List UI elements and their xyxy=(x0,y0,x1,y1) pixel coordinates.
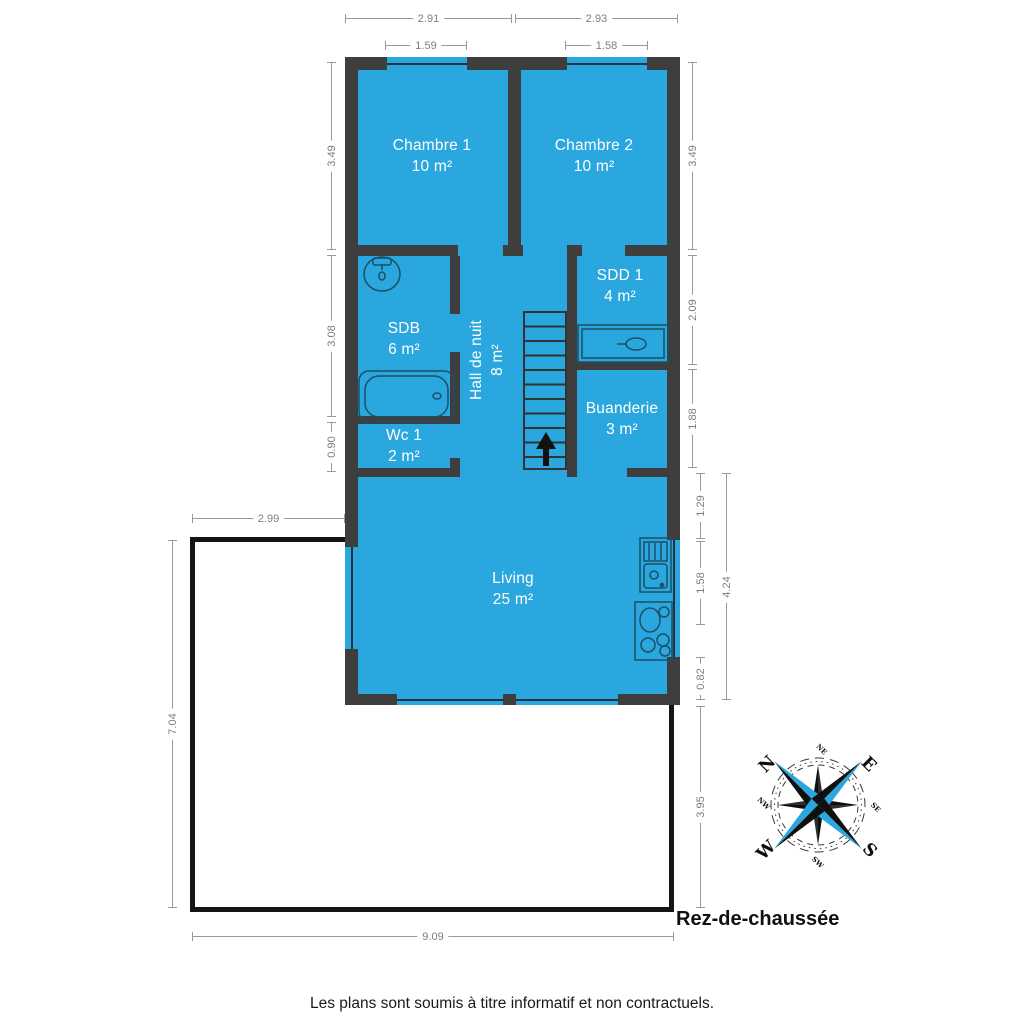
dim-right-living-total: 4.24 xyxy=(726,473,727,700)
compass-rose-icon: N E W S NE SE SW NW xyxy=(748,735,888,875)
room-name: Chambre 2 xyxy=(524,135,664,156)
wall-segment xyxy=(503,694,516,705)
terrace-outline-right xyxy=(669,705,674,912)
compass-sw-label: SW xyxy=(810,854,826,870)
compass-south-label: S xyxy=(858,839,881,862)
room-area: 2 m² xyxy=(354,446,454,467)
wall-chambre-divider xyxy=(508,57,521,256)
compass-ne-label: NE xyxy=(814,742,829,757)
compass-north-label: N xyxy=(755,752,780,777)
disclaimer-text: Les plans sont soumis à titre informatif… xyxy=(0,995,1024,1013)
dim-terrace-width-bottom: 9.09 xyxy=(192,936,674,937)
dim-left-wc: 0.90 xyxy=(331,422,332,472)
floor-title: Rez-de-chaussée xyxy=(676,908,866,931)
wall-sdb-right xyxy=(450,256,460,314)
wall-sdd-buanderie-divider xyxy=(577,362,680,370)
dim-right-living-window: 1.58 xyxy=(700,541,701,625)
dim-chambre2-width: 2.93 xyxy=(515,18,678,19)
room-name: Living xyxy=(443,568,583,589)
room-label-wc-1: Wc 1 2 m² xyxy=(354,425,454,467)
room-area: 3 m² xyxy=(552,419,692,440)
wall-sdb-wc-divider xyxy=(345,416,460,424)
wall-segment xyxy=(345,245,458,256)
room-label-living: Living 25 m² xyxy=(443,568,583,610)
compass-se-label: SE xyxy=(869,800,883,814)
room-label-chambre-2: Chambre 2 10 m² xyxy=(524,135,664,177)
room-name: Hall de nuit xyxy=(466,300,487,420)
terrace-outline-left xyxy=(190,537,195,912)
window-chambre2 xyxy=(567,59,647,68)
room-label-chambre-1: Chambre 1 10 m² xyxy=(362,135,502,177)
terrace-outline-top xyxy=(190,537,345,542)
wall-buanderie-bottom xyxy=(627,468,680,477)
dim-chambre1-window: 1.59 xyxy=(385,45,467,46)
dim-right-buanderie: 1.88 xyxy=(692,369,693,468)
room-label-sdb: SDB 6 m² xyxy=(354,318,454,360)
room-area: 6 m² xyxy=(354,339,454,360)
dim-right-chambre2-depth: 3.49 xyxy=(692,62,693,250)
compass-east-label: E xyxy=(857,753,880,776)
window-chambre1 xyxy=(387,59,467,68)
room-area: 4 m² xyxy=(560,286,680,307)
room-label-buanderie: Buanderie 3 m² xyxy=(552,398,692,440)
window-kitchen xyxy=(669,540,678,657)
room-name: Chambre 1 xyxy=(362,135,502,156)
wall-wc-bottom xyxy=(356,468,460,477)
stairs-direction-arrow xyxy=(543,447,549,466)
wall-segment xyxy=(503,245,523,256)
terrace-outline-bottom xyxy=(190,907,674,912)
floor-plan-page: Chambre 1 10 m² Chambre 2 10 m² SDB 6 m²… xyxy=(0,0,1024,1024)
dim-chambre1-width: 2.91 xyxy=(345,18,512,19)
wall-segment xyxy=(618,694,680,705)
dim-right-living-upper: 1.29 xyxy=(700,473,701,539)
dim-right-living-lower: 0.82 xyxy=(700,657,701,700)
dim-terrace-height-left: 7.04 xyxy=(172,540,173,908)
dim-left-sdb: 3.08 xyxy=(331,255,332,417)
room-area: 8 m² xyxy=(487,300,508,420)
wall-segment xyxy=(625,245,680,256)
room-label-hall-de-nuit: Hall de nuit 8 m² xyxy=(466,300,510,420)
compass-nw-label: NW xyxy=(756,795,773,812)
compass-west-label: W xyxy=(752,836,781,865)
wall-segment xyxy=(345,694,397,705)
wall-sdb-right xyxy=(450,352,460,422)
room-area: 25 m² xyxy=(443,589,583,610)
dim-right-sdd1: 2.09 xyxy=(692,255,693,365)
dim-left-chambre1-depth: 3.49 xyxy=(331,62,332,250)
dim-right-terrace: 3.95 xyxy=(700,706,701,908)
room-name: SDD 1 xyxy=(560,265,680,286)
room-name: Wc 1 xyxy=(354,425,454,446)
room-name: Buanderie xyxy=(552,398,692,419)
room-name: SDB xyxy=(354,318,454,339)
wall-segment xyxy=(567,245,582,256)
room-area: 10 m² xyxy=(524,156,664,177)
window-living-left xyxy=(347,547,356,649)
dim-chambre2-window: 1.58 xyxy=(565,45,648,46)
dim-terrace-width-top: 2.99 xyxy=(192,518,345,519)
room-area: 10 m² xyxy=(362,156,502,177)
room-label-sdd-1: SDD 1 4 m² xyxy=(560,265,680,307)
